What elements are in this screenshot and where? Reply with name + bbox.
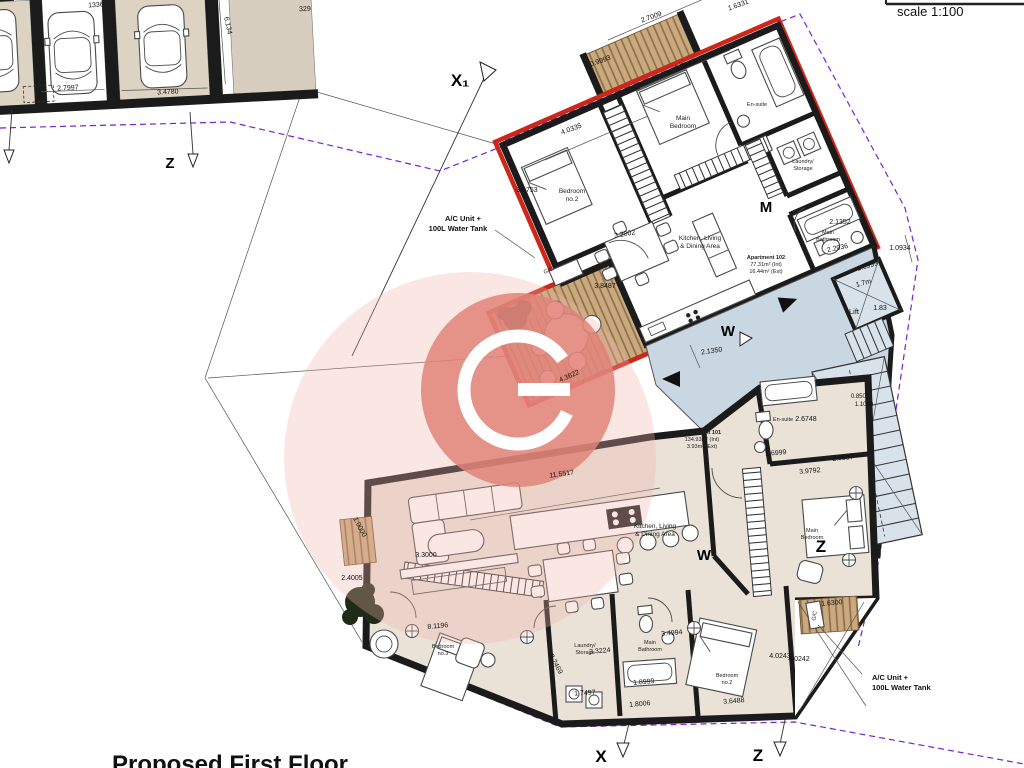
room-ensuite-lower: En-suite — [773, 417, 793, 423]
room-bedroom2-upper: Bedroom — [559, 188, 585, 195]
floor-plan-drawing: scale 1:100 Proposed First Floor X₁ Z M … — [0, 0, 1024, 768]
sink-icon — [755, 442, 766, 453]
dim: 2.1352 — [829, 219, 851, 226]
svg-text:Bathroom: Bathroom — [638, 647, 662, 653]
svg-text:Bedroom: Bedroom — [670, 123, 696, 130]
scale-label: scale 1:100 — [897, 4, 964, 19]
svg-text:& Dining Area: & Dining Area — [635, 531, 675, 538]
dim: 1.1050 — [855, 402, 874, 408]
dim: 1.83 — [873, 305, 887, 312]
svg-text:100L Water Tank: 100L Water Tank — [429, 224, 488, 233]
room-main-bedroom-lower: Main — [806, 528, 818, 534]
bath-icon — [760, 376, 817, 406]
floorplan-sheet: scale 1:100 Proposed First Floor X₁ Z M … — [0, 0, 1024, 768]
apt101-int: 134.93m² (Int) — [685, 437, 720, 443]
room-bathroom-upper: Main — [822, 230, 834, 236]
dim: 3.4780 — [157, 88, 179, 96]
apt102-int: 77.31m² (Int) — [750, 262, 782, 268]
svg-text:no.3: no.3 — [438, 651, 449, 657]
dim: 329 — [299, 6, 311, 14]
ac-note-lower: A/C Unit + — [872, 673, 909, 682]
dim: 3.8487 — [594, 283, 616, 290]
svg-text:Bedroom: Bedroom — [801, 535, 824, 541]
svg-text:Storage: Storage — [793, 166, 812, 172]
dim: 2.4005 — [341, 575, 363, 582]
marker-x-bottom: X — [595, 747, 607, 766]
room-bedroom2-lower: Bedroom — [716, 673, 739, 679]
armchair-icon — [370, 630, 398, 658]
dim: 0.8509 — [851, 394, 870, 400]
marker-z-bottom: Z — [753, 746, 763, 765]
apt101-name: Apartment 101 — [683, 430, 721, 436]
dim: 2.7997 — [57, 84, 79, 92]
marker-w-upper: W — [721, 323, 736, 340]
car-icon — [43, 11, 101, 96]
dim: 1.6331 — [727, 0, 750, 13]
apt102-name: Apartment 102 — [747, 255, 785, 261]
room-kitchen-lower: Kitchen, Living — [634, 523, 677, 530]
room-bedroom3-lower: Bedroom — [432, 644, 455, 650]
dim: 3.1753 — [516, 187, 538, 194]
room-main-bedroom-upper: Main — [676, 115, 690, 122]
watermark-logo — [284, 272, 656, 644]
dim: 3.3000 — [415, 552, 437, 559]
garage-parking — [0, 0, 318, 116]
room-laundry-upper: Laundry/ — [792, 159, 814, 165]
apt101-ext: 3.93m² (Ext) — [687, 444, 717, 450]
room-kitchen-upper: Kitchen, Living — [679, 235, 722, 242]
apt102-ext: 16.44m² (Ext) — [749, 269, 782, 275]
marker-w-lower: W — [697, 547, 712, 564]
dim: 2.6748 — [795, 416, 817, 423]
svg-text:no.2: no.2 — [722, 680, 733, 686]
room-bathroom-lower: Main — [644, 640, 656, 646]
dim: 1.0934 — [889, 245, 911, 252]
dim: 1336 — [88, 2, 104, 10]
svg-text:Bathroom: Bathroom — [816, 237, 840, 243]
marker-z-top: Z — [165, 155, 174, 172]
dim: 1.7497 — [574, 689, 596, 697]
marker-m: M — [760, 199, 773, 216]
marker-x1: X₁ — [451, 71, 469, 90]
ac-note-upper: A/C Unit + — [445, 214, 482, 223]
room-ensuite-upper: En-suite — [747, 102, 767, 108]
drawing-title: Proposed First Floor — [112, 751, 348, 768]
svg-text:100L Water Tank: 100L Water Tank — [872, 683, 931, 692]
dim: 4.0242 — [788, 656, 810, 663]
svg-text:& Dining Area: & Dining Area — [680, 243, 720, 250]
room-lift: Lift — [849, 307, 860, 316]
svg-text:no.2: no.2 — [566, 196, 579, 203]
car-icon — [133, 4, 191, 89]
bed-icon — [802, 495, 869, 558]
